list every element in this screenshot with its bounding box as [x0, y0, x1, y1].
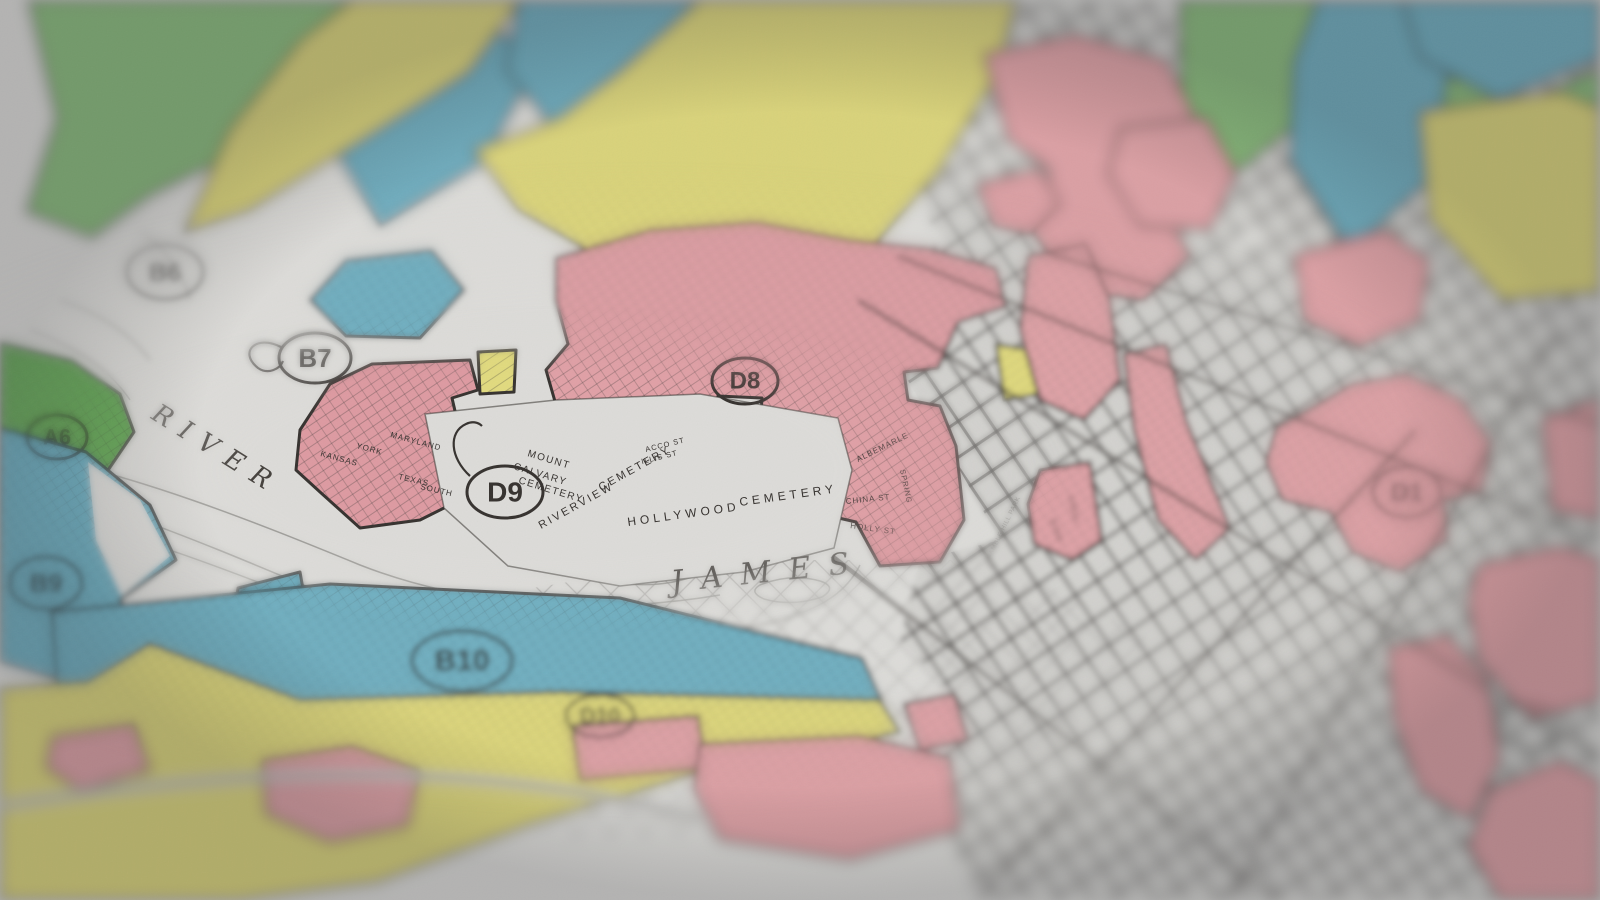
map-canvas: RIVERJAMESMOUNTCALVARYCEMETERYRIVERVIEWC…: [0, 0, 1600, 900]
photo-grain: [0, 0, 1600, 900]
redlining-map-photograph: RIVERJAMESMOUNTCALVARYCEMETERYRIVERVIEWC…: [0, 0, 1600, 900]
